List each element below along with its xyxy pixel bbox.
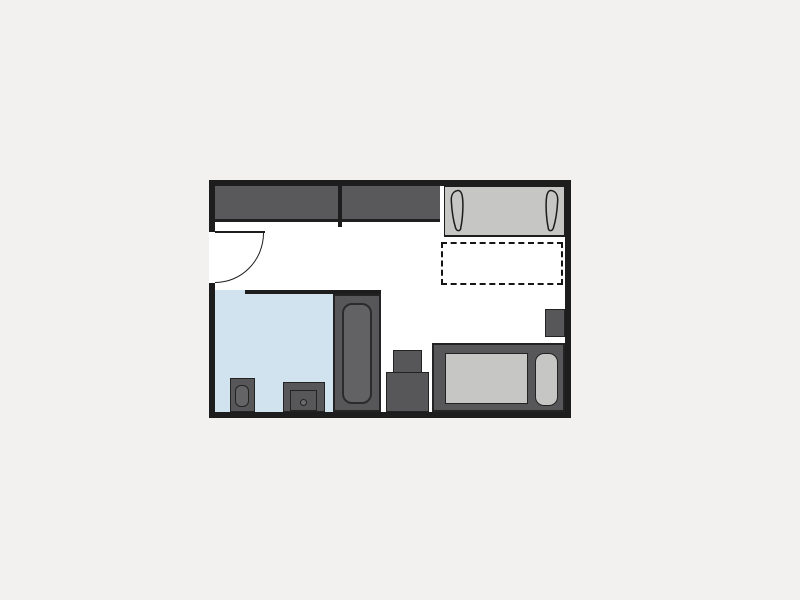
pillow-icon [449,189,466,233]
wall-cabinet [545,309,565,337]
canvas: { "page": { "background": "#f2f1ef", "de… [0,0,800,600]
pillow-icon [543,189,560,233]
desk-counter [432,343,565,412]
toilet [230,378,255,412]
bathtub [333,294,381,412]
door-swing-arc [215,233,264,283]
wardrobe-divider [338,186,342,227]
seat-pad [535,353,558,406]
floor-plan [209,180,571,418]
sofa-bed [444,186,565,237]
fold-out-bed-area [441,242,563,285]
cabinet-bottom [386,372,429,412]
desk-surface [445,353,528,404]
washbasin-cabinet [283,382,325,412]
cabinet-top [393,350,422,373]
toilet-bowl [235,385,249,407]
bathtub-basin [342,303,372,404]
wardrobe [215,186,440,222]
washbasin-drain [300,399,307,406]
